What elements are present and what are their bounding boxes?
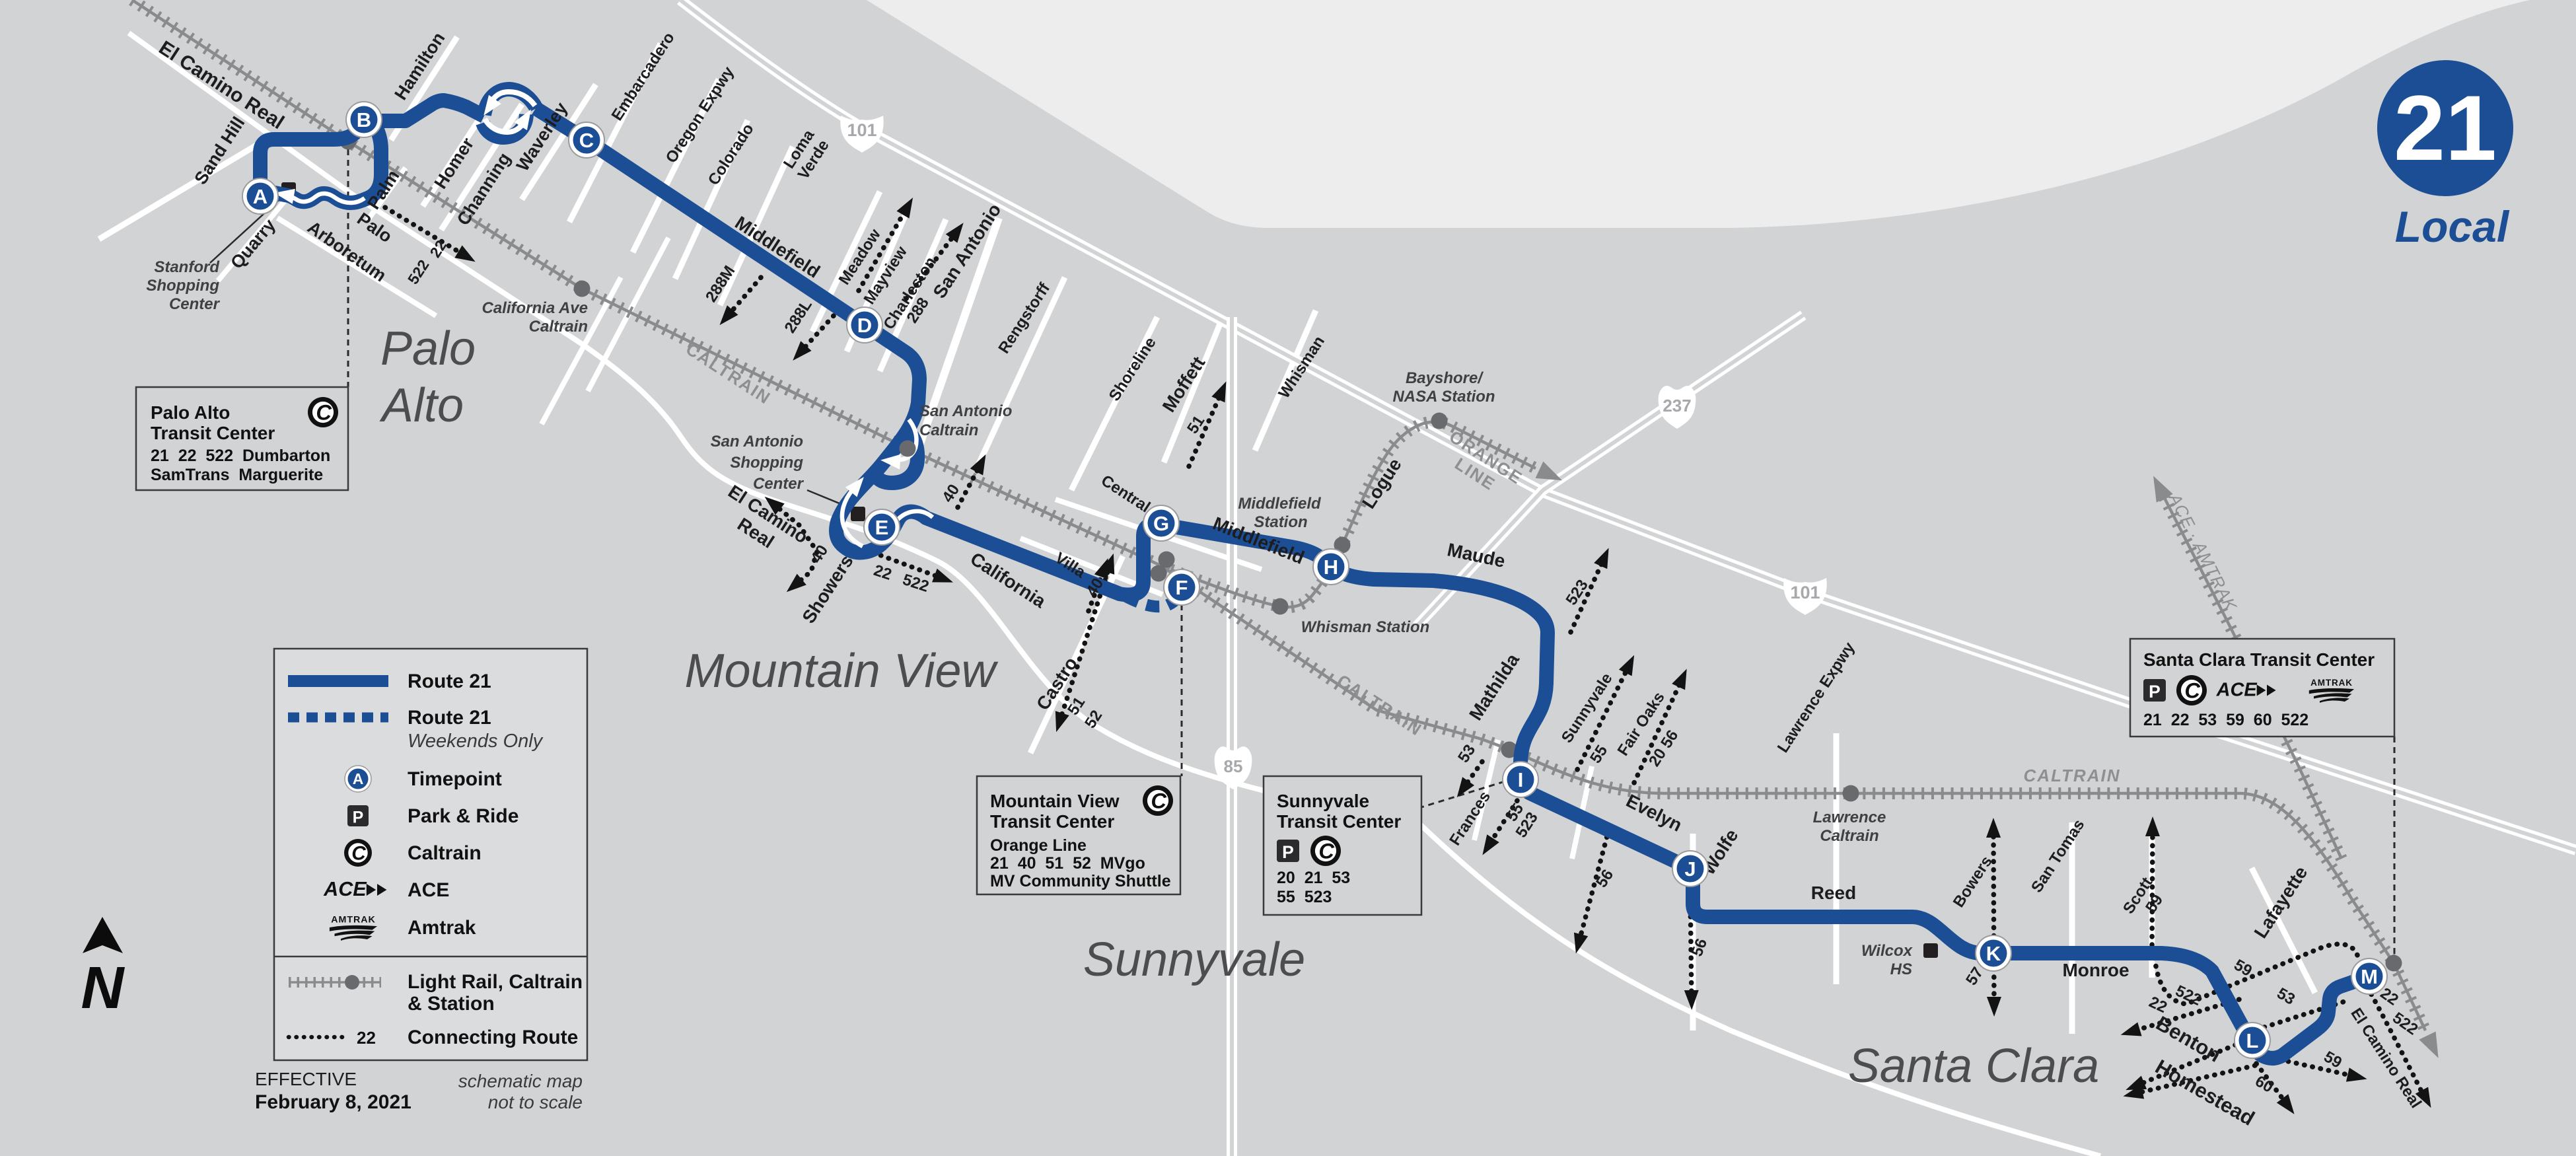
svg-text:ACE: ACE xyxy=(2216,680,2258,701)
svg-text:ACE: ACE xyxy=(408,879,449,901)
svg-text:22: 22 xyxy=(357,1028,376,1048)
svg-text:C: C xyxy=(2184,678,2200,703)
svg-text:& Station: & Station xyxy=(408,993,495,1015)
svg-text:101: 101 xyxy=(1790,583,1820,602)
svg-text:K: K xyxy=(1986,942,2001,965)
svg-text:Caltrain: Caltrain xyxy=(919,421,978,439)
svg-text:Center: Center xyxy=(169,295,221,313)
svg-text:Alto: Alto xyxy=(379,379,464,432)
svg-text:P: P xyxy=(1282,842,1294,862)
svg-text:Connecting Route: Connecting Route xyxy=(408,1027,578,1048)
svg-text:Shopping: Shopping xyxy=(146,277,219,295)
svg-text:85: 85 xyxy=(1224,756,1243,776)
svg-text:Monroe: Monroe xyxy=(2062,960,2129,980)
svg-text:P: P xyxy=(353,808,364,826)
svg-text:G: G xyxy=(1153,512,1169,535)
svg-text:ACE: ACE xyxy=(323,878,367,900)
svg-text:SamTrans Marguerite: SamTrans Marguerite xyxy=(151,466,323,484)
svg-text:Reed: Reed xyxy=(1811,883,1856,903)
svg-text:Shopping: Shopping xyxy=(730,454,803,472)
svg-text:C: C xyxy=(1151,789,1166,813)
svg-text:AMTRAK: AMTRAK xyxy=(2310,678,2353,688)
svg-text:L: L xyxy=(2246,1029,2259,1052)
svg-text:Local: Local xyxy=(2395,202,2510,251)
svg-text:California Ave: California Ave xyxy=(482,299,589,317)
svg-text:Caltrain: Caltrain xyxy=(529,318,588,336)
svg-text:Transit Center: Transit Center xyxy=(990,811,1114,832)
svg-text:A: A xyxy=(253,185,268,208)
svg-text:Mountain View: Mountain View xyxy=(990,791,1120,811)
svg-text:Mountain View: Mountain View xyxy=(685,645,999,698)
svg-text:P: P xyxy=(2149,682,2161,702)
svg-text:21 22 53 59 60 522: 21 22 53 59 60 522 xyxy=(2143,711,2308,729)
svg-text:Caltrain: Caltrain xyxy=(1820,827,1878,845)
svg-text:Santa Clara Transit Center: Santa Clara Transit Center xyxy=(2143,649,2375,670)
svg-text:M: M xyxy=(2361,965,2378,988)
svg-text:Lawrence: Lawrence xyxy=(1813,809,1886,826)
svg-text:MV Community Shuttle: MV Community Shuttle xyxy=(990,872,1171,890)
svg-text:Light Rail, Caltrain: Light Rail, Caltrain xyxy=(408,971,583,993)
svg-text:not to scale: not to scale xyxy=(488,1092,583,1112)
svg-text:C: C xyxy=(579,129,594,152)
svg-text:Weekends Only: Weekends Only xyxy=(408,731,544,752)
svg-text:Center: Center xyxy=(753,475,805,493)
svg-text:San Antonio: San Antonio xyxy=(711,433,803,451)
svg-text:Transit Center: Transit Center xyxy=(1277,811,1401,832)
svg-text:February 8, 2021: February 8, 2021 xyxy=(255,1091,411,1113)
svg-text:schematic map: schematic map xyxy=(458,1071,583,1091)
svg-text:B: B xyxy=(357,108,371,131)
svg-text:Transit Center: Transit Center xyxy=(151,423,275,443)
svg-text:Wilcox: Wilcox xyxy=(1861,942,1914,960)
svg-text:Santa Clara: Santa Clara xyxy=(1848,1040,2099,1093)
svg-text:Station: Station xyxy=(1254,513,1307,531)
svg-text:E: E xyxy=(875,516,889,539)
svg-text:Palo: Palo xyxy=(380,322,476,375)
svg-text:A: A xyxy=(353,770,364,787)
svg-text:21 40 51 52 MVgo: 21 40 51 52 MVgo xyxy=(990,854,1145,873)
svg-text:C: C xyxy=(316,400,332,425)
svg-text:D: D xyxy=(857,314,872,337)
svg-text:101: 101 xyxy=(847,120,877,140)
svg-text:HS: HS xyxy=(1890,960,1912,978)
svg-text:I: I xyxy=(1518,768,1524,791)
svg-text:Orange Line: Orange Line xyxy=(990,836,1087,855)
svg-text:Caltrain: Caltrain xyxy=(408,842,482,864)
svg-text:Timepoint: Timepoint xyxy=(408,768,502,790)
svg-text:Stanford: Stanford xyxy=(154,258,220,276)
svg-text:AMTRAK: AMTRAK xyxy=(331,914,375,925)
svg-text:N: N xyxy=(81,955,125,1021)
svg-text:Park & Ride: Park & Ride xyxy=(408,805,519,827)
svg-text:21 22 522 Dumbarton: 21 22 522 Dumbarton xyxy=(151,447,330,465)
svg-text:55 523: 55 523 xyxy=(1277,888,1332,906)
svg-text:Bayshore/: Bayshore/ xyxy=(1406,369,1484,387)
svg-text:San Antonio: San Antonio xyxy=(919,402,1012,420)
svg-text:Route 21: Route 21 xyxy=(408,670,491,692)
svg-text:21: 21 xyxy=(2394,76,2497,180)
svg-text:Whisman Station: Whisman Station xyxy=(1301,618,1430,636)
svg-text:H: H xyxy=(1324,556,1338,579)
svg-text:Palo Alto: Palo Alto xyxy=(151,402,230,423)
svg-text:Amtrak: Amtrak xyxy=(408,917,476,939)
svg-text:C: C xyxy=(351,843,366,865)
svg-text:F: F xyxy=(1176,576,1188,599)
svg-text:C: C xyxy=(1318,839,1334,863)
svg-text:EFFECTIVE: EFFECTIVE xyxy=(255,1069,357,1089)
svg-text:237: 237 xyxy=(1663,396,1691,415)
svg-text:CALTRAIN: CALTRAIN xyxy=(2024,766,2121,785)
svg-text:Route 21: Route 21 xyxy=(408,707,491,729)
svg-text:Middlefield: Middlefield xyxy=(1238,495,1322,513)
svg-text:J: J xyxy=(1684,857,1696,881)
svg-text:Sunnyvale: Sunnyvale xyxy=(1083,933,1305,986)
svg-text:20 21 53: 20 21 53 xyxy=(1277,869,1350,887)
svg-text:NASA Station: NASA Station xyxy=(1392,388,1495,406)
svg-text:Sunnyvale: Sunnyvale xyxy=(1277,791,1369,811)
